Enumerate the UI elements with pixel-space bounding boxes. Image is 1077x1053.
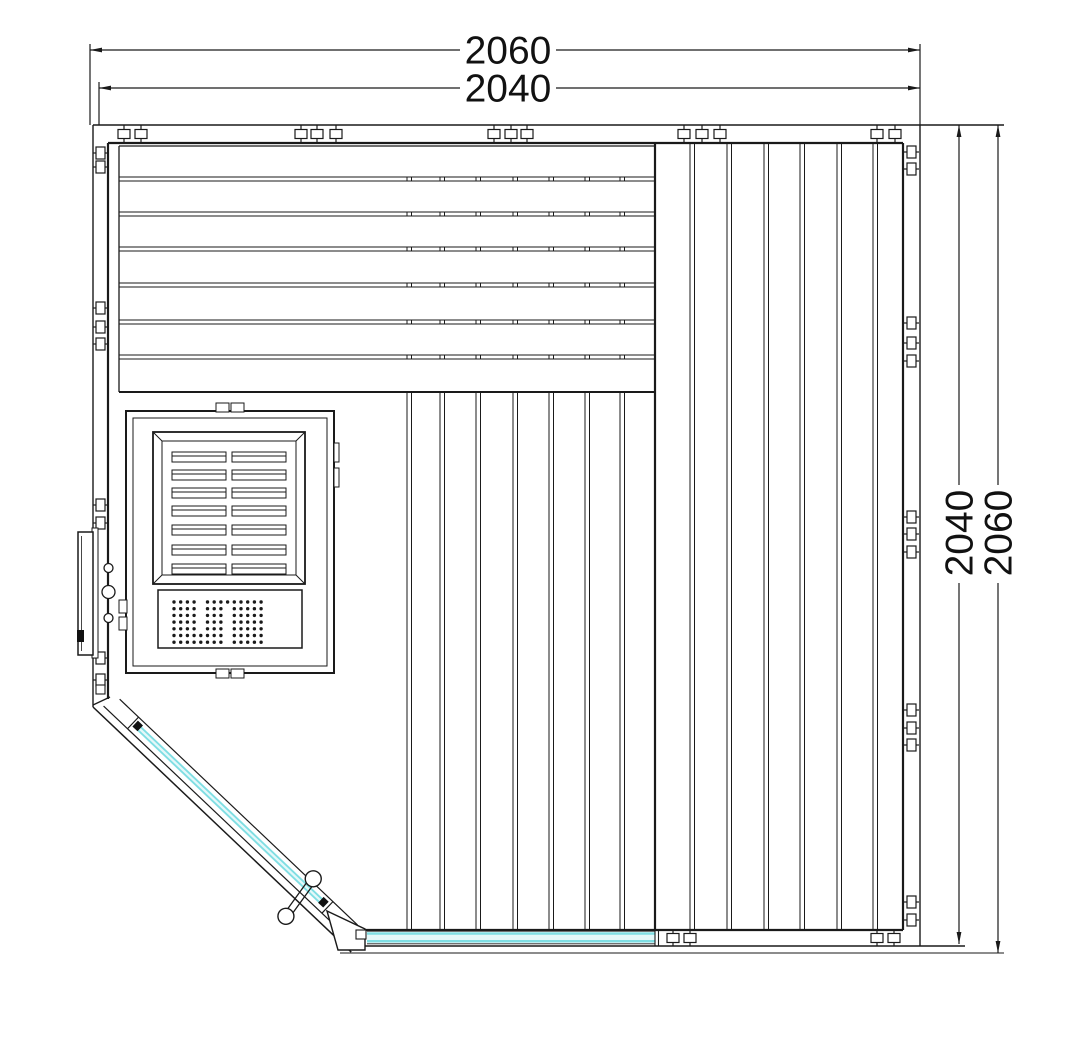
panel-dot [239, 620, 242, 623]
arrow-2040-right [908, 86, 920, 91]
floorboard-joint [585, 392, 590, 930]
slat-gap-tick [476, 212, 481, 216]
dot-grid-gap-1 [196, 599, 203, 632]
panel-clip-right [907, 355, 916, 367]
heater-louver [232, 525, 286, 535]
arrow-2040-left [99, 86, 111, 91]
panel-dot [172, 627, 175, 630]
control-box-switch [77, 630, 84, 642]
heater-louver [172, 470, 226, 480]
panel-clip-right [907, 317, 916, 329]
dim-text-right-outer: 2060 [978, 490, 1021, 577]
bench-slat-lines [119, 177, 655, 359]
panel-dot [186, 600, 189, 603]
panel-dot [233, 607, 236, 610]
panel-dot [239, 600, 242, 603]
door-bottom-post [327, 911, 366, 950]
slat-gap-tick [585, 355, 590, 359]
heater-tab-left-lower [119, 617, 127, 630]
panel-dot [246, 627, 249, 630]
panel-clip-right [907, 528, 916, 540]
bench-slat-boundary [119, 320, 655, 324]
slat-gap-tick [513, 247, 518, 251]
dim-text-top-inner: 2040 [465, 68, 552, 111]
panel-dot [246, 634, 249, 637]
panel-dot [226, 600, 229, 603]
panel-dot [233, 620, 236, 623]
bench-slat-boundary [119, 212, 655, 216]
panel-dot [206, 641, 209, 644]
arrow-r2060-top [996, 125, 1001, 137]
heater-louver [172, 506, 226, 516]
floorboard-joint [837, 143, 842, 930]
panel-dot [233, 634, 236, 637]
door-frame-lines [93, 690, 368, 952]
panel-clip-top [714, 130, 726, 139]
panel-dot [239, 614, 242, 617]
floorboard-joint [407, 392, 412, 930]
panel-dot [233, 627, 236, 630]
bench-slat-boundary [119, 177, 655, 181]
panel-dot [253, 600, 256, 603]
panel-dot [179, 641, 182, 644]
heater-louvers [172, 452, 286, 574]
panel-dot [186, 620, 189, 623]
heater-louver [172, 452, 226, 462]
heater-dot-grid [172, 600, 262, 644]
corner-door [74, 682, 375, 972]
heater-louver [172, 488, 226, 498]
panel-clip-right [907, 511, 916, 523]
panel-dot [219, 614, 222, 617]
slat-gap-tick [476, 320, 481, 324]
panel-dot [219, 634, 222, 637]
panel-dot [213, 614, 216, 617]
panel-clip-left [96, 147, 105, 159]
arrow-r2040-bottom [957, 932, 962, 944]
panel-clip-right [907, 546, 916, 558]
panel-dot [259, 614, 262, 617]
floor-boards [407, 143, 878, 930]
drawing-page: 2060 2040 2040 2060 [0, 0, 1077, 1053]
panel-dot [179, 620, 182, 623]
panel-clip-bottom [684, 934, 696, 943]
panel-clip-right [907, 739, 916, 751]
panel-dot [246, 600, 249, 603]
panel-dot [192, 641, 195, 644]
panel-dot [246, 620, 249, 623]
heater-louver [172, 564, 226, 574]
panel-dot [259, 620, 262, 623]
panel-dot [253, 614, 256, 617]
heater-tab-left-upper [119, 600, 127, 613]
panel-dot [253, 607, 256, 610]
door-post-notch-top [96, 685, 105, 694]
panel-dot [246, 614, 249, 617]
slat-gap-tick [476, 283, 481, 287]
slat-gap-tick [549, 355, 554, 359]
lock-hole-bottom [104, 614, 113, 623]
slat-gap-tick [620, 355, 625, 359]
bench-slat-gap-ticks [407, 177, 625, 359]
floor-plan-canvas: 2060 2040 2040 2060 [0, 0, 1077, 1053]
panel-dot [179, 614, 182, 617]
arrow-r2060-bottom [996, 941, 1001, 953]
floorboard-joint [727, 143, 732, 930]
panel-dot [259, 600, 262, 603]
panel-dot [253, 641, 256, 644]
panel-dot [213, 607, 216, 610]
panel-dot [172, 607, 175, 610]
panel-clip-top [488, 130, 500, 139]
panel-dot [179, 627, 182, 630]
panel-dot [239, 641, 242, 644]
heater-louver [232, 564, 286, 574]
dimension-arrowheads [90, 48, 1000, 953]
heater-louver [232, 452, 286, 462]
panel-clip-right [907, 704, 916, 716]
panel-dot [259, 627, 262, 630]
heater-grille-miters [153, 432, 305, 584]
bench-slat-boundary [119, 355, 655, 359]
panel-clip-left [96, 321, 105, 333]
dimension-lines [90, 50, 998, 953]
panel-clip-right [907, 722, 916, 734]
panel-dot [192, 614, 195, 617]
panel-dot [199, 634, 202, 637]
heater-tab-top-left [216, 403, 229, 412]
panel-dot [172, 634, 175, 637]
door-frame-inner-line [120, 699, 358, 925]
floorboard-joint [764, 143, 769, 930]
panel-dot [206, 627, 209, 630]
panel-dot [192, 627, 195, 630]
panel-clip-top [696, 130, 708, 139]
panel-dot [206, 607, 209, 610]
front-glass-panel [367, 930, 659, 946]
bench-slat-boundary [119, 283, 655, 287]
panel-clip-top [295, 130, 307, 139]
floorboard-joint [800, 143, 805, 930]
panel-clip-top [678, 130, 690, 139]
lock-hole-top [104, 564, 113, 573]
panel-dot [206, 614, 209, 617]
door-glass-edge-inner [135, 727, 324, 907]
bench [119, 143, 655, 930]
slat-gap-tick [549, 177, 554, 181]
door-wall-outer-line [93, 707, 351, 952]
slat-gap-tick [585, 247, 590, 251]
heater-tab-bottom-left [216, 669, 229, 678]
panel-dot [192, 600, 195, 603]
slat-gap-tick [620, 283, 625, 287]
panel-dot [246, 641, 249, 644]
slat-gap-tick [407, 283, 412, 287]
heater-louver [172, 545, 226, 555]
door-frame-outer-line [104, 706, 353, 942]
panel-dot [233, 614, 236, 617]
heater-tab-top-right [231, 403, 244, 412]
panel-dot [186, 627, 189, 630]
heater-louver [232, 545, 286, 555]
panel-dot [199, 641, 202, 644]
heater-unit [119, 403, 339, 678]
dim-text-right-inner: 2040 [939, 490, 982, 577]
panel-clip-top [889, 130, 901, 139]
arrow-2060-right [908, 48, 920, 53]
slat-gap-tick [407, 212, 412, 216]
panel-dot [172, 600, 175, 603]
panel-dot [219, 607, 222, 610]
panel-dot [219, 627, 222, 630]
slat-gap-tick [549, 320, 554, 324]
slat-gap-tick [440, 212, 445, 216]
panel-dot [192, 607, 195, 610]
slat-gap-tick [585, 320, 590, 324]
slat-gap-tick [513, 283, 518, 287]
slat-gap-tick [585, 212, 590, 216]
slat-gap-tick [549, 247, 554, 251]
heater-louver [232, 470, 286, 480]
panel-clip-top [521, 130, 533, 139]
panel-dot [213, 620, 216, 623]
panel-dot [186, 634, 189, 637]
panel-dot [186, 641, 189, 644]
heater-tab-right-lower [334, 468, 339, 487]
heater-tab-bottom-right [231, 669, 244, 678]
panel-dot [186, 614, 189, 617]
panel-dot [206, 634, 209, 637]
slat-gap-tick [476, 355, 481, 359]
panel-clip-right [907, 914, 916, 926]
heater-louver [232, 506, 286, 516]
slat-gap-tick [440, 177, 445, 181]
panel-dot [213, 600, 216, 603]
slat-gap-tick [513, 177, 518, 181]
slat-gap-tick [585, 283, 590, 287]
slat-gap-tick [513, 320, 518, 324]
handle-knob-outside [275, 905, 298, 928]
panel-dot [239, 627, 242, 630]
slat-gap-tick [476, 177, 481, 181]
door-post-notch-bottom [356, 930, 366, 939]
floorboard-joint [620, 392, 625, 930]
slat-gap-tick [440, 320, 445, 324]
panel-dot [206, 620, 209, 623]
panel-clip-right [907, 896, 916, 908]
dim-text-top-outer: 2060 [465, 30, 552, 73]
panel-dot [172, 620, 175, 623]
panel-dot [259, 641, 262, 644]
panel-clip-bottom [871, 934, 883, 943]
slat-gap-tick [407, 247, 412, 251]
slat-gap-tick [585, 177, 590, 181]
panel-clip-top [871, 130, 883, 139]
slat-gap-tick [407, 320, 412, 324]
panel-clip-left [96, 674, 105, 686]
panel-clip-left [96, 302, 105, 314]
slat-gap-tick [440, 355, 445, 359]
panel-dot [253, 620, 256, 623]
front-glass-end-seam [655, 930, 659, 946]
lock-hole-middle [102, 586, 115, 599]
heater-tab-right-upper [334, 443, 339, 462]
panel-clip-right [907, 163, 916, 175]
panel-clip-top [311, 130, 323, 139]
panel-clip-left [96, 517, 105, 529]
slat-gap-tick [407, 177, 412, 181]
panel-clip-left [96, 499, 105, 511]
door-glass-pane [134, 723, 328, 907]
wall-left-end-cap [93, 697, 110, 705]
floorboard-joint [873, 143, 878, 930]
panel-clip-top [505, 130, 517, 139]
panel-clip-right [907, 337, 916, 349]
panel-clip-bottom [667, 934, 679, 943]
panel-dot [219, 620, 222, 623]
panel-clip-bottom [888, 934, 900, 943]
panel-dot [213, 641, 216, 644]
panel-dot [179, 600, 182, 603]
panel-dot [192, 620, 195, 623]
heater-louver [232, 488, 286, 498]
panel-dot [213, 627, 216, 630]
panel-dot [172, 614, 175, 617]
left-wall-fittings [77, 528, 115, 694]
panel-clip-left [96, 161, 105, 173]
panel-dot [213, 634, 216, 637]
panel-dot [179, 607, 182, 610]
panel-dot [246, 607, 249, 610]
panel-dot [239, 634, 242, 637]
slat-gap-tick [440, 247, 445, 251]
panel-clip-top [330, 130, 342, 139]
floorboard-joint [549, 392, 554, 930]
floorboard-joint [690, 143, 695, 930]
floorboard-joint [476, 392, 481, 930]
heater-louver [172, 525, 226, 535]
panel-clip-right [907, 146, 916, 158]
slat-gap-tick [549, 212, 554, 216]
arrow-2060-left [90, 48, 102, 53]
panel-dot [219, 600, 222, 603]
slat-gap-tick [440, 283, 445, 287]
panel-dot [233, 641, 236, 644]
slat-gap-tick [513, 355, 518, 359]
panel-dot [172, 641, 175, 644]
slat-gap-tick [620, 212, 625, 216]
heater-grille-frame [153, 432, 305, 584]
slat-gap-tick [549, 283, 554, 287]
arrow-r2040-top [957, 125, 962, 137]
slat-gap-tick [620, 320, 625, 324]
panel-dot [239, 607, 242, 610]
panel-dot [206, 600, 209, 603]
panel-dot [259, 634, 262, 637]
panel-clip-top [118, 130, 130, 139]
panel-dot [253, 634, 256, 637]
slat-gap-tick [513, 212, 518, 216]
floorboard-joint [440, 392, 445, 930]
panel-clip-top [135, 130, 147, 139]
panel-dot [253, 627, 256, 630]
slat-gap-tick [620, 177, 625, 181]
slat-gap-tick [407, 355, 412, 359]
panel-clip-left [96, 338, 105, 350]
slat-gap-tick [476, 247, 481, 251]
bench-slat-boundary [119, 247, 655, 251]
slat-gap-tick [620, 247, 625, 251]
door-glass-edge-outer [138, 724, 327, 904]
panel-dot [186, 607, 189, 610]
dot-grid-gap-2 [224, 607, 231, 644]
panel-dot [192, 634, 195, 637]
panel-dot [219, 641, 222, 644]
panel-dot [259, 607, 262, 610]
panel-dot [233, 600, 236, 603]
floorboard-joint [513, 392, 518, 930]
panel-dot [179, 634, 182, 637]
